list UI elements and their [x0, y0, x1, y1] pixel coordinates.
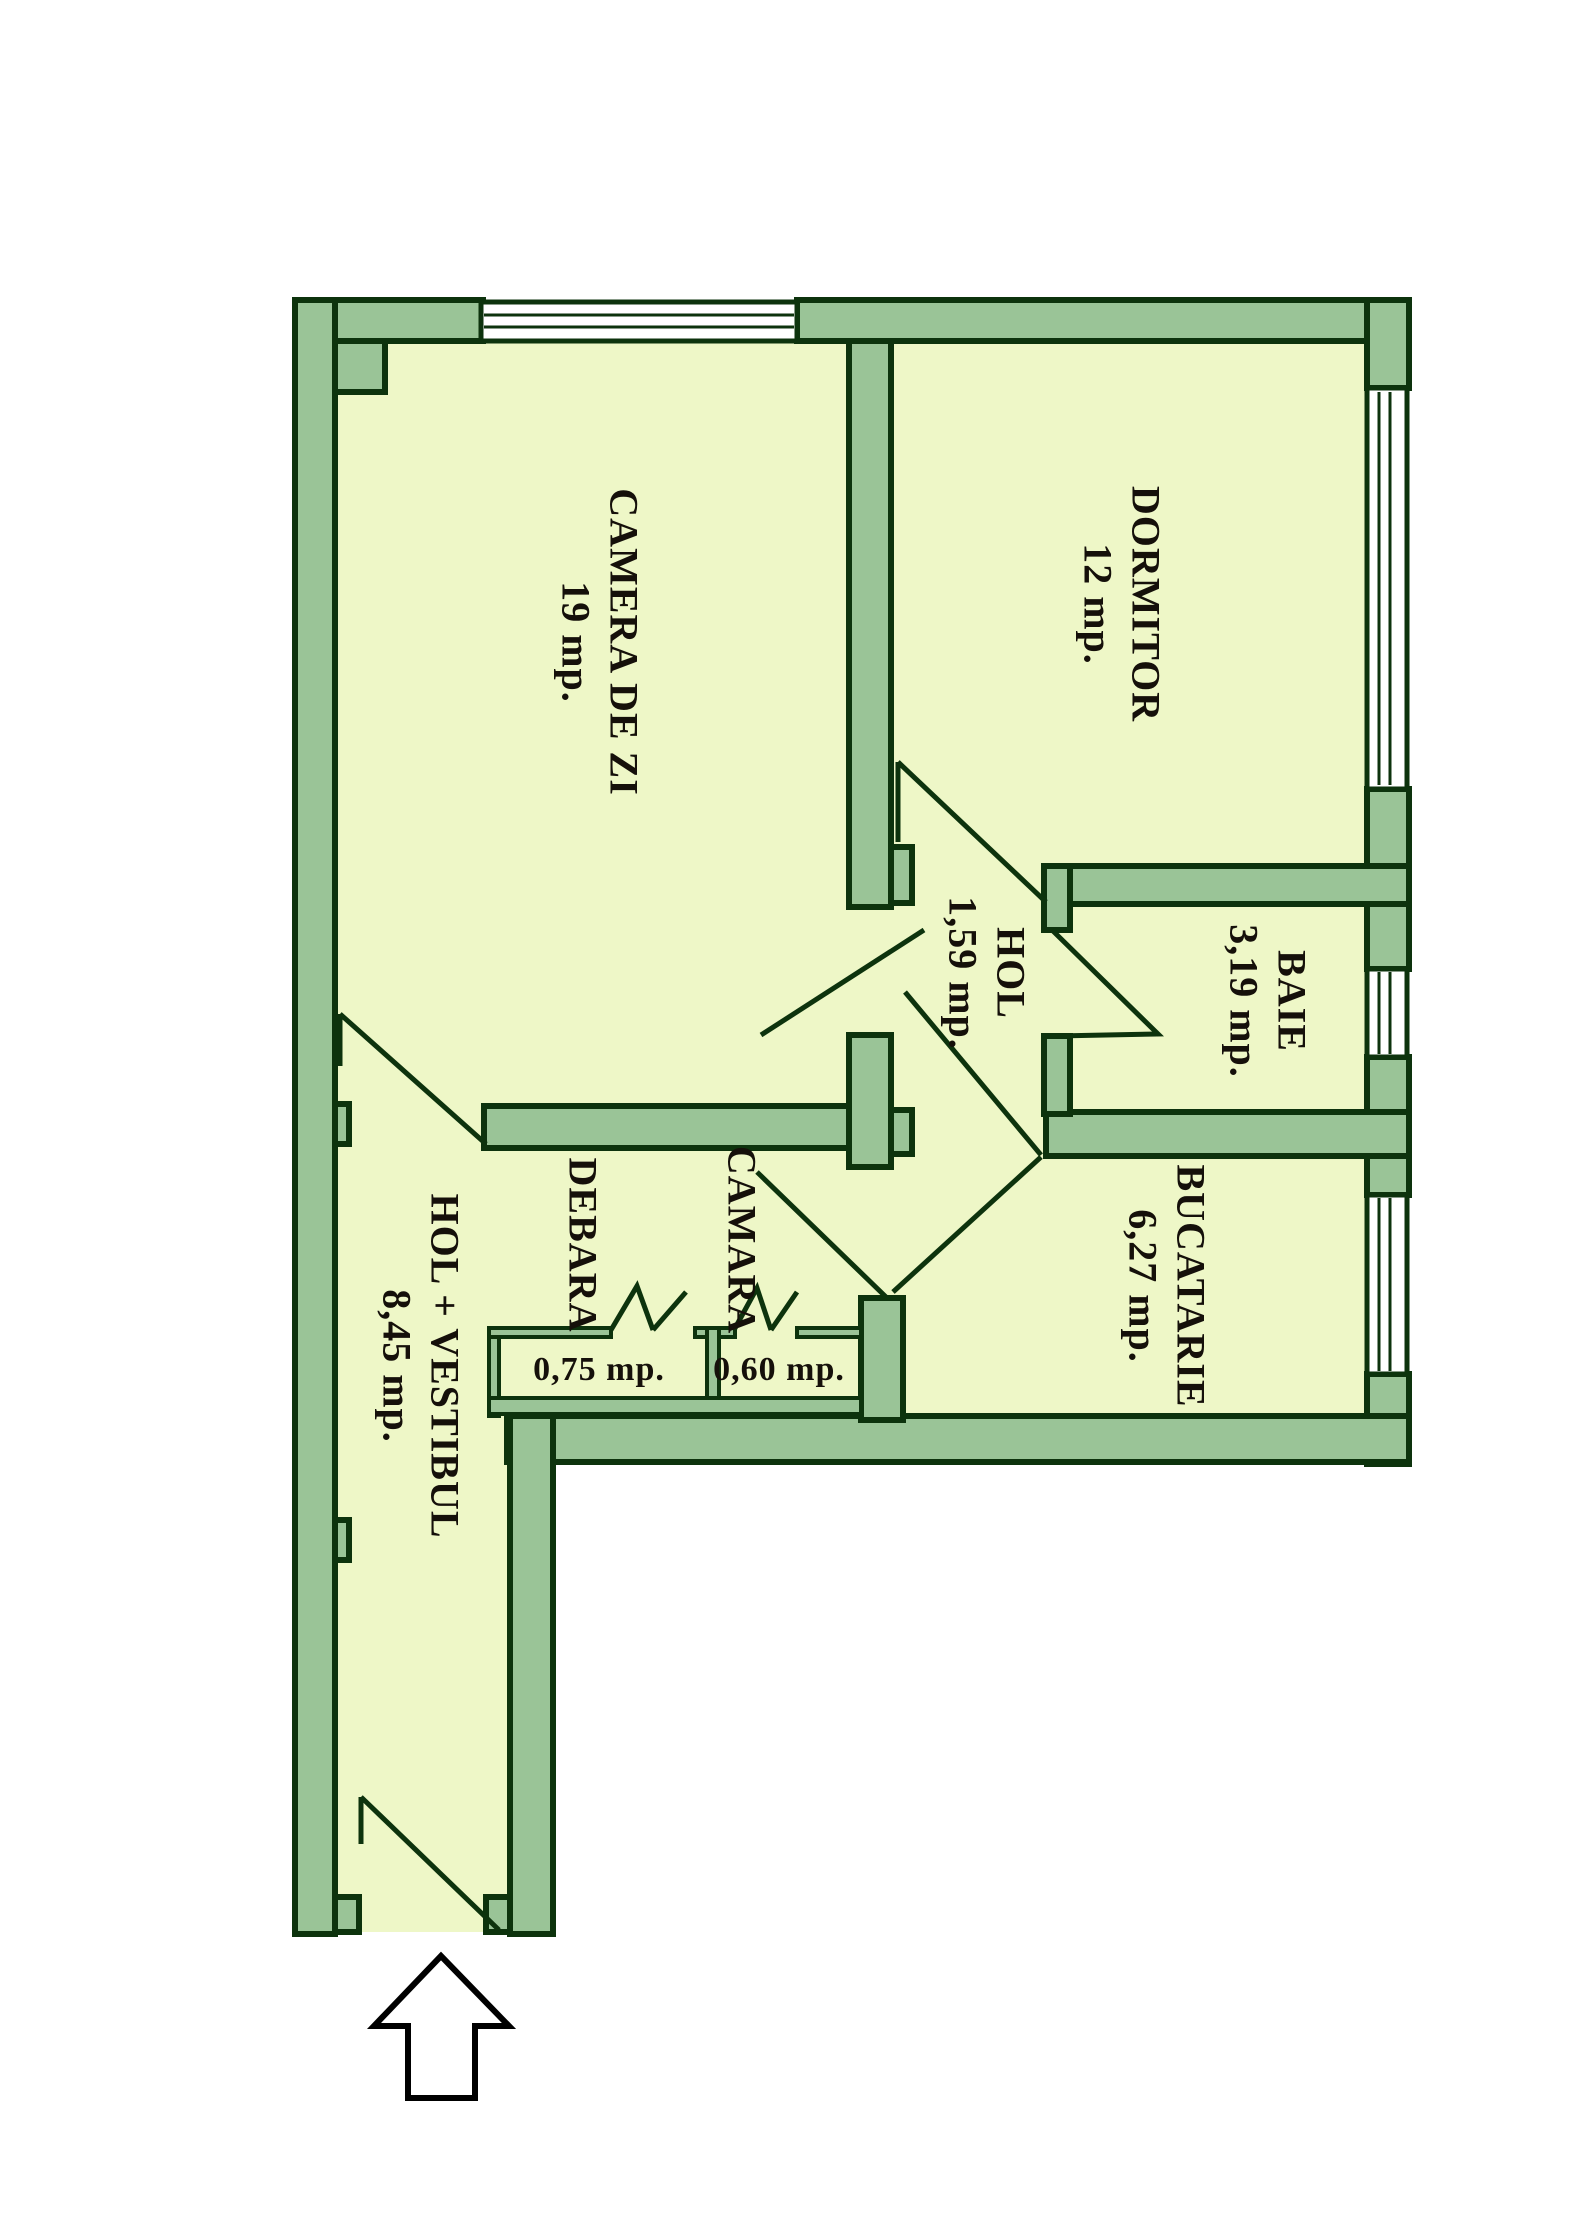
wall-closets-bottom — [489, 1398, 861, 1414]
floor-plan-page: CAMERA DE ZI 19 mp. DORMITOR 12 mp. HOL … — [0, 0, 1578, 2236]
room-area-bucatarie: 6,27 mp. — [1121, 1209, 1166, 1363]
wall-baie-left-upper — [1044, 866, 1070, 930]
room-area-hol: 1,59 mp. — [941, 896, 986, 1050]
wall-right-a — [1367, 300, 1409, 388]
room-label-camera-de-zi: CAMERA DE ZI — [602, 488, 647, 796]
wall-left — [295, 300, 335, 1934]
wall-spine-post — [849, 1035, 891, 1167]
room-label-camara: CAMARA — [720, 1146, 765, 1334]
floor-plan: CAMERA DE ZI 19 mp. DORMITOR 12 mp. HOL … — [0, 0, 1578, 2236]
wall-left-jamb-a — [335, 1104, 349, 1144]
window-baie — [1367, 969, 1407, 1057]
room-label-debara: DEBARA — [561, 1158, 606, 1333]
wall-baie-top — [1046, 866, 1409, 904]
room-label-dormitor: DORMITOR — [1124, 486, 1169, 722]
wall-spine-upper — [849, 341, 891, 907]
wall-camera-bottom — [484, 1106, 849, 1148]
wall-spine-jamb — [891, 847, 912, 903]
entrance-arrow-up-icon — [374, 1956, 509, 2098]
room-label-hol: HOL — [989, 927, 1034, 1019]
room-label-baie: BAIE — [1270, 950, 1315, 1052]
window-bucatarie — [1367, 1195, 1407, 1374]
wall-corridor-right — [510, 1416, 553, 1934]
room-area-hol-vestibul: 8,45 mp. — [375, 1289, 420, 1443]
room-area-debara: 0,75 mp. — [533, 1351, 665, 1388]
wall-left-jamb-b — [335, 1520, 349, 1560]
window-camera-de-zi — [481, 302, 797, 341]
room-area-baie: 3,19 mp. — [1222, 924, 1267, 1078]
room-label-hol-vestibul: HOL + VESTIBUL — [423, 1193, 468, 1538]
room-area-camera-de-zi: 19 mp. — [554, 581, 599, 703]
wall-top-right — [797, 300, 1409, 341]
wall-baie-bucatarie — [1046, 1112, 1409, 1156]
window-dormitor — [1367, 388, 1407, 789]
room-area-camara: 0,60 mp. — [713, 1351, 845, 1388]
wall-camara-top — [797, 1328, 861, 1337]
wall-left-jamb-entrance — [335, 1897, 359, 1932]
room-area-dormitor: 12 mp. — [1076, 543, 1121, 665]
wall-spine-stub — [891, 1110, 912, 1154]
wall-bottom — [507, 1416, 1409, 1462]
room-label-bucatarie: BUCATARIE — [1169, 1164, 1214, 1407]
wall-bucatarie-left — [861, 1298, 903, 1420]
wall-baie-left-lower — [1044, 1036, 1070, 1114]
